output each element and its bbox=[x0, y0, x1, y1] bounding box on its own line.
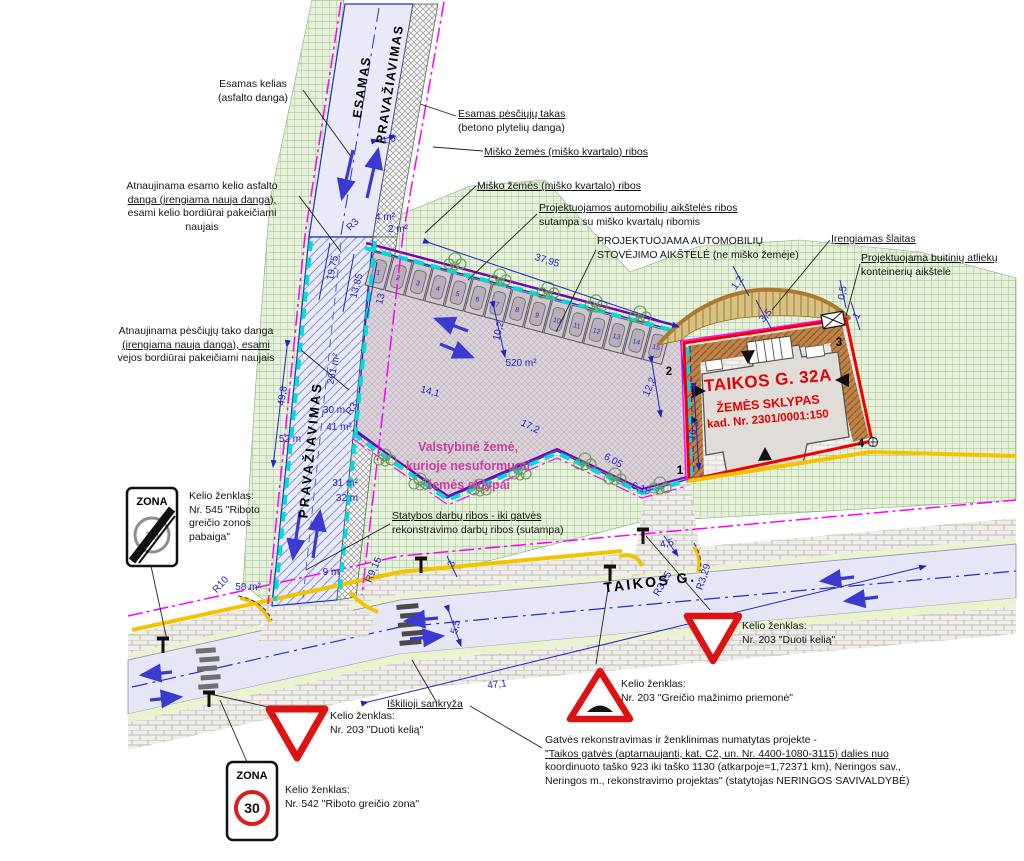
zone-30-title: ZONA bbox=[236, 770, 267, 782]
zone-end-title: ZONA bbox=[136, 496, 167, 508]
sign-zone-30: ZONA 30 bbox=[227, 762, 277, 840]
plan-drawing: 123456789101112131415 bbox=[0, 0, 1024, 861]
sign-yield-left bbox=[269, 709, 325, 758]
sign-speed-bump bbox=[570, 671, 630, 719]
waste-pad-icon bbox=[821, 311, 845, 329]
zone-30-speed: 30 bbox=[244, 800, 260, 816]
site-plan: 123456789101112131415 bbox=[0, 0, 1024, 861]
sign-zone-end: ZONA 30 bbox=[127, 488, 177, 566]
